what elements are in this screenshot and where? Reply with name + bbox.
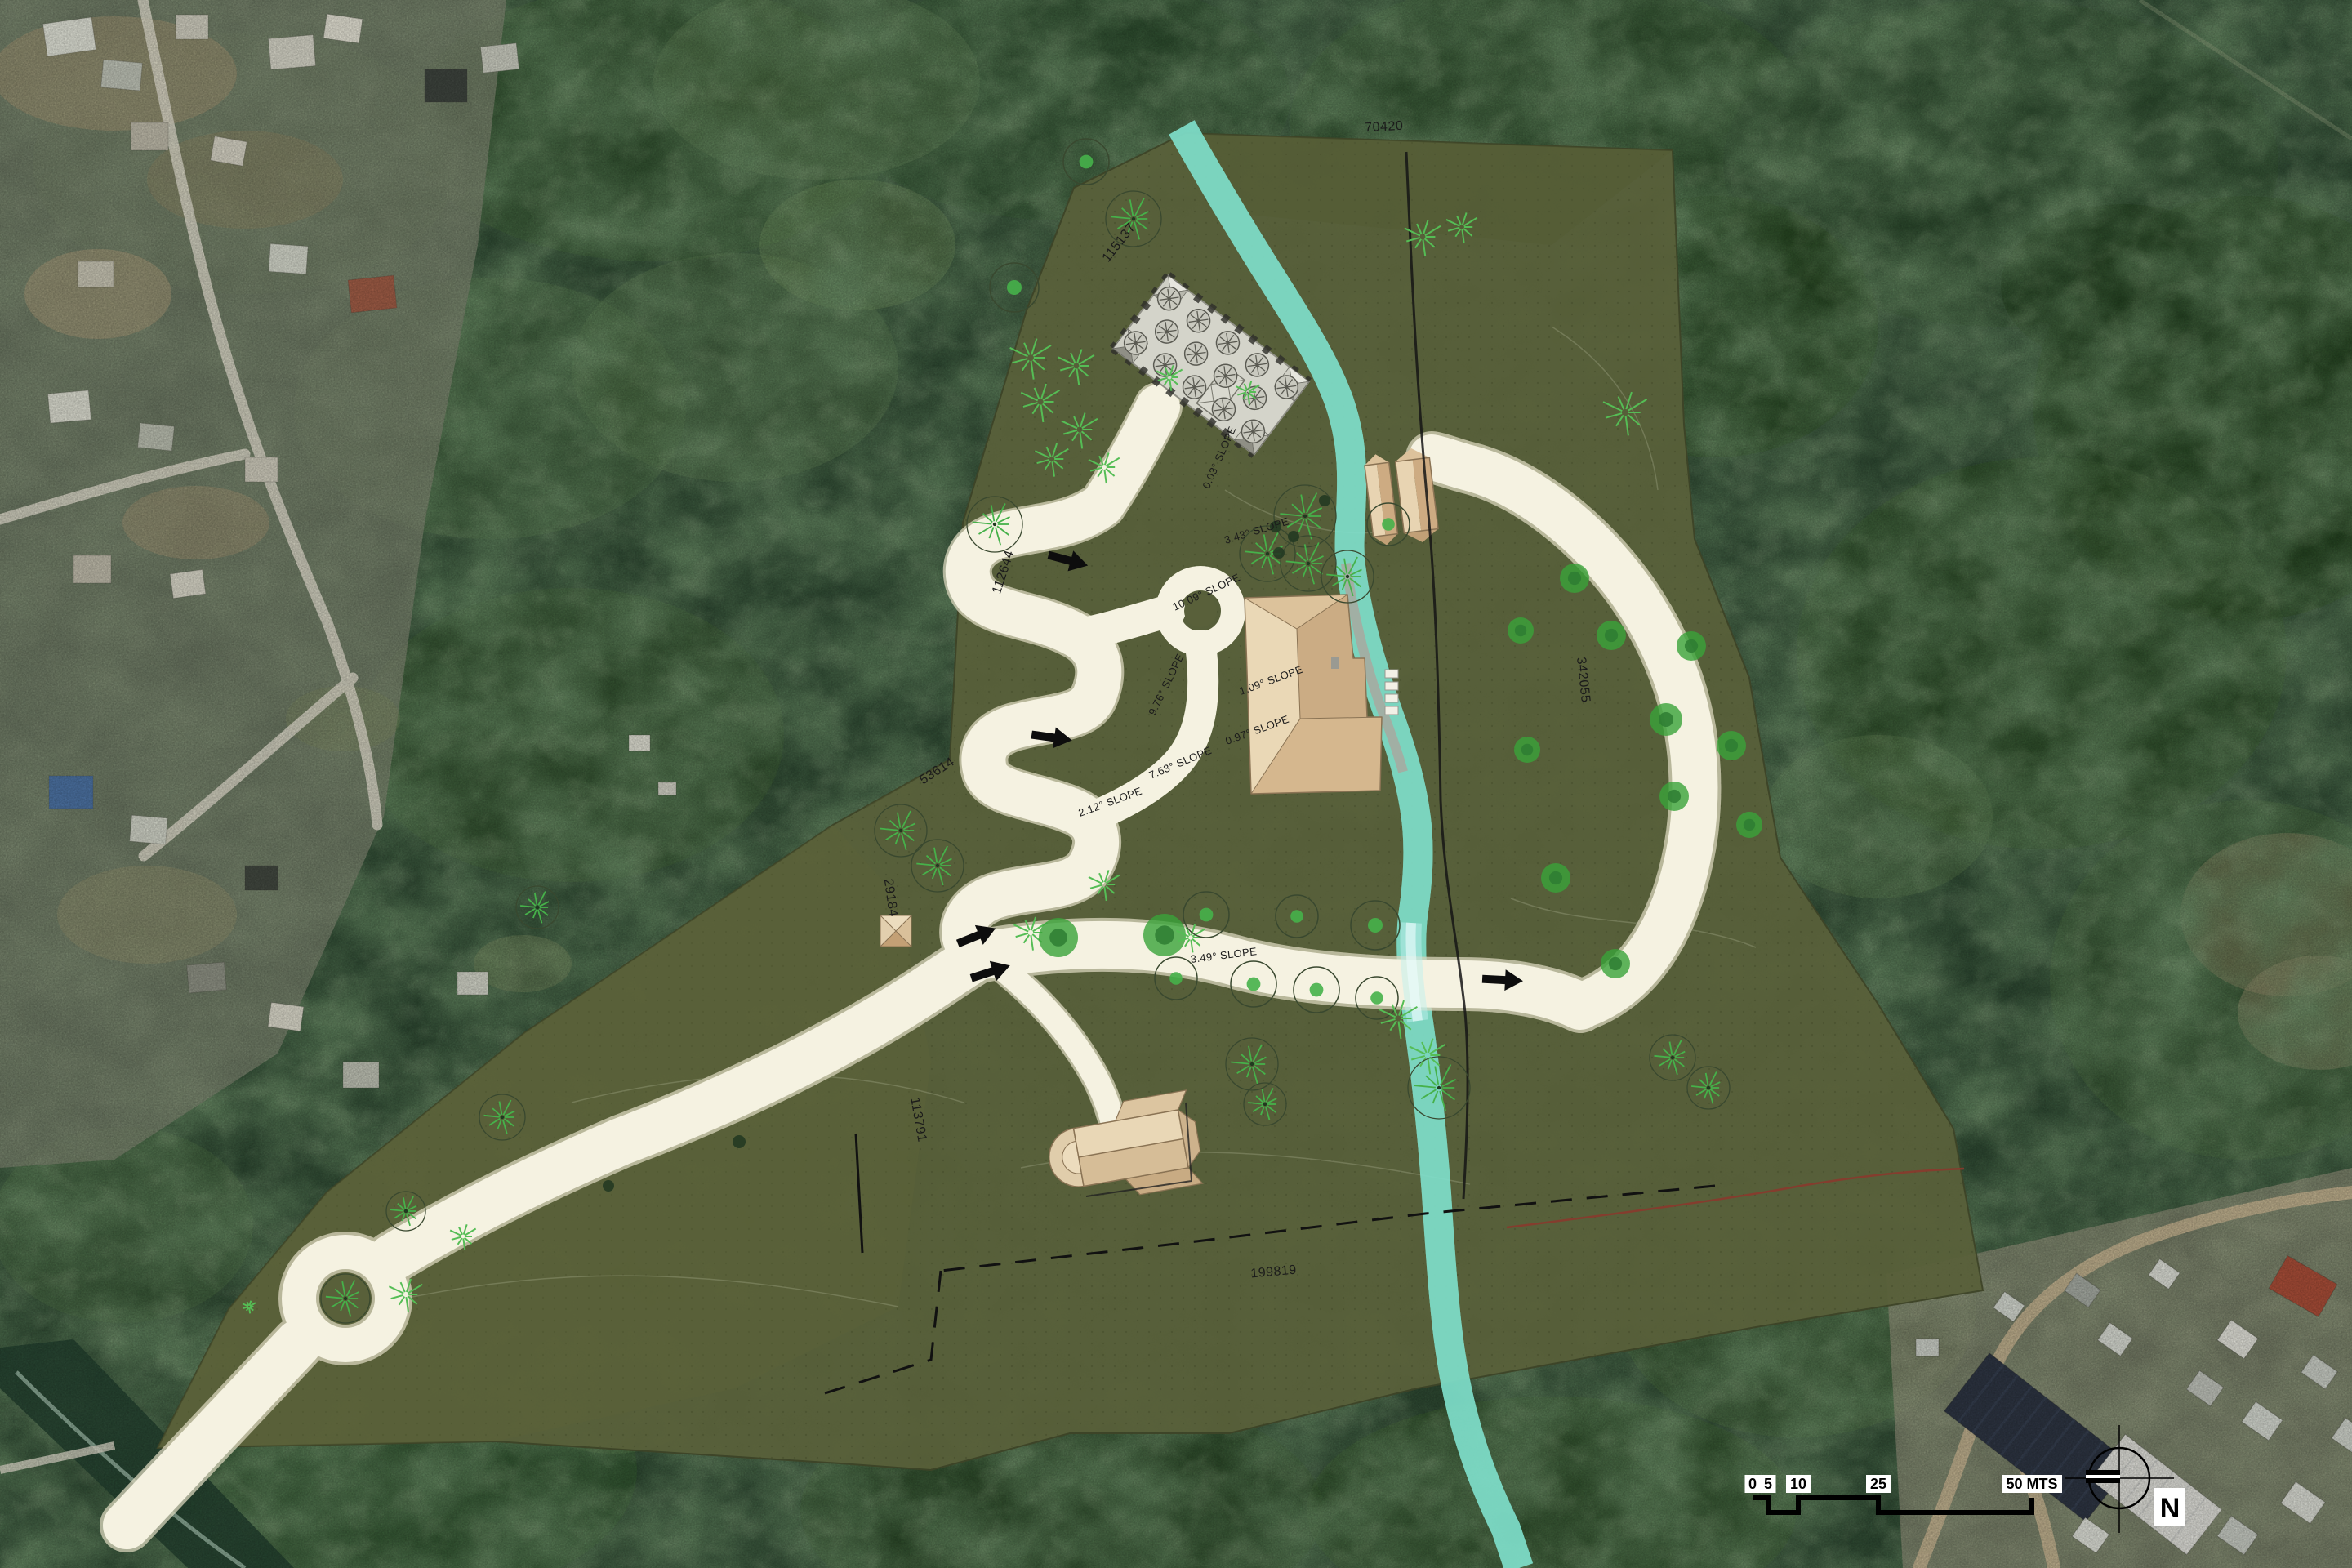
tree-symbol [1560,563,1589,593]
tree-symbol [1039,918,1078,957]
tree-symbol [1514,737,1540,763]
tree-symbol [1659,782,1689,811]
tree-symbol [1601,949,1630,978]
rooftop-vent [1331,657,1339,669]
scale-tick-label: 10 [1790,1476,1806,1492]
tree-symbol [1736,812,1762,838]
tree-symbol [603,1180,614,1192]
tree-symbol [1508,617,1534,644]
tree-symbol [1143,914,1186,956]
scale-tick-label: 25 [1870,1476,1886,1492]
tree-symbol [733,1135,746,1148]
stream-road-crossing [1410,923,1418,1021]
tree-symbol [1717,731,1746,760]
compass-bar-inner [2086,1475,2120,1478]
tree-symbol [1541,863,1570,893]
tree-symbol [1288,531,1299,542]
tree-symbol [1319,495,1330,506]
north-label: N [2160,1493,2180,1524]
scale-tick-label: 5 [1764,1476,1772,1492]
tree-symbol [1273,547,1285,559]
tree-symbol [1677,631,1706,661]
tree-symbol [1597,621,1626,650]
dimension-label: 70420 [1365,119,1404,135]
scale-tick-label: 0 [1748,1476,1757,1492]
tree-symbol [1650,703,1682,736]
site-plan-map: 7042011513711264453614291841137911998193… [0,0,2352,1568]
hillside-pavilion [880,915,911,947]
scale-tick-label: 50 MTS [2006,1476,2057,1492]
